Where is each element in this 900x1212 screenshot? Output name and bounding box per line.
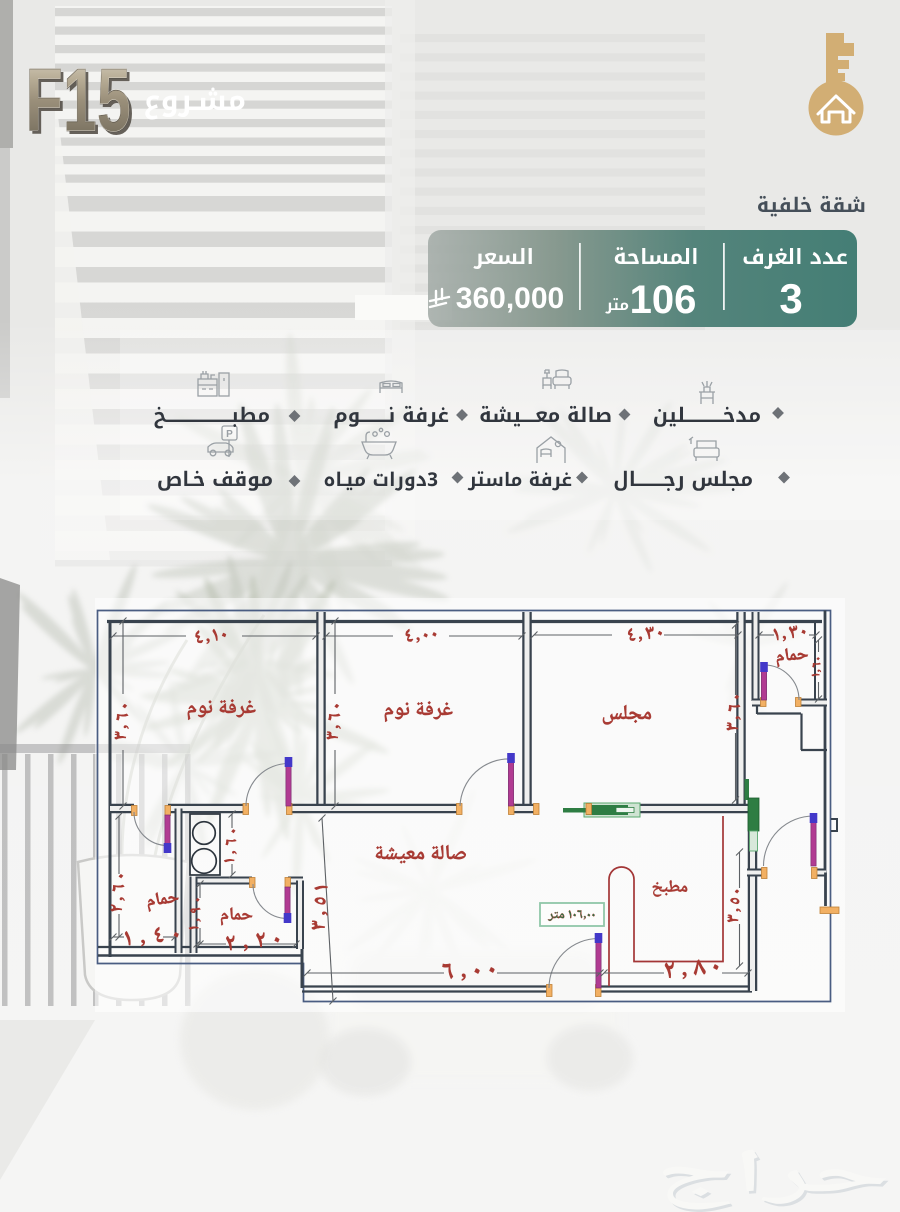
svg-text:P: P bbox=[226, 429, 233, 440]
svg-text:3: 3 bbox=[779, 275, 802, 322]
svg-text:360,000: 360,000 bbox=[456, 282, 564, 315]
svg-text:106: 106 bbox=[630, 278, 697, 322]
svg-text:F15: F15 bbox=[25, 50, 130, 151]
